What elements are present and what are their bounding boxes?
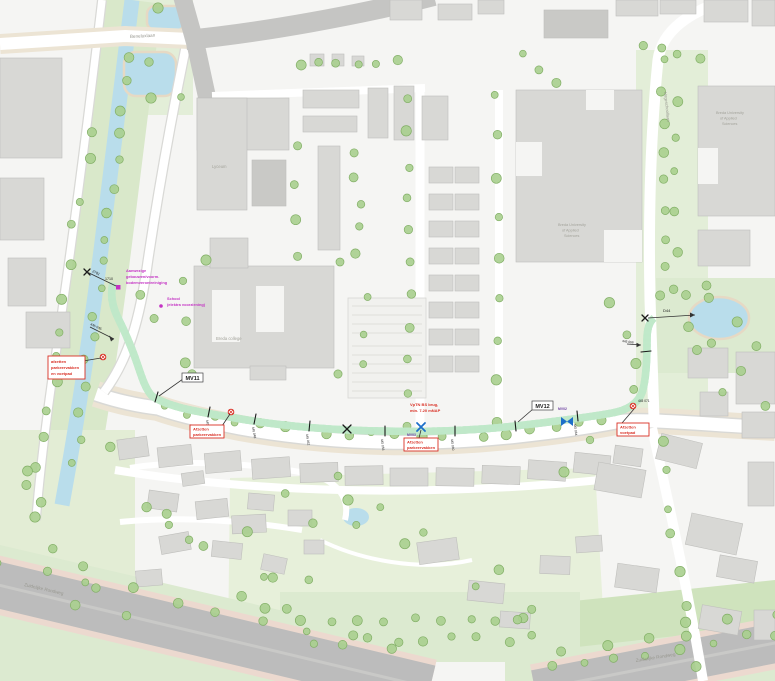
end-label-d44: D44 — [663, 308, 671, 313]
building — [26, 312, 70, 348]
building — [195, 498, 229, 519]
building — [438, 4, 472, 20]
building — [540, 555, 571, 574]
building — [135, 569, 162, 587]
building — [752, 0, 775, 26]
valve-label: MV12 — [535, 404, 549, 410]
building — [742, 412, 775, 438]
building — [429, 356, 453, 372]
building — [660, 0, 696, 14]
school-point[interactable] — [159, 304, 163, 308]
building — [303, 116, 357, 132]
building — [748, 462, 774, 506]
svg-text:Sciences: Sciences — [722, 122, 738, 126]
building — [455, 194, 479, 210]
svg-text:Breda University: Breda University — [558, 223, 586, 227]
building-label-lyceum: Lyceum — [212, 164, 227, 169]
svg-text:VpTN BS brug,: VpTN BS brug, — [410, 402, 438, 407]
building — [455, 329, 479, 345]
building — [455, 167, 479, 183]
building — [197, 98, 247, 210]
building — [613, 445, 643, 467]
building — [147, 490, 179, 512]
building — [544, 10, 608, 38]
building — [211, 540, 243, 559]
svg-text:Breda University: Breda University — [716, 111, 744, 115]
svg-text:School: School — [167, 296, 180, 301]
bridge-note: VpTN BS brug, min. 7.20 mNAP — [410, 402, 441, 413]
svg-text:(elektra voorziening): (elektra voorziening) — [167, 302, 206, 307]
building — [455, 248, 479, 264]
closure-text: en voetpad — [51, 371, 73, 376]
building — [482, 465, 521, 484]
building — [575, 535, 602, 553]
building — [736, 352, 775, 404]
building — [429, 329, 453, 345]
building — [478, 0, 504, 14]
closure-text: voetpad — [620, 430, 636, 435]
work-point-right — [630, 403, 636, 409]
building — [117, 436, 149, 460]
point-start: 1710 — [105, 277, 113, 281]
building — [429, 167, 453, 183]
building — [157, 444, 193, 467]
building — [251, 457, 290, 480]
building — [8, 258, 46, 306]
map-image: Beneluxlaan Hogeschoollaan Zuidelijke Ro… — [0, 0, 775, 681]
parking-lot — [348, 298, 426, 398]
closure-box-mid[interactable]: Afzetten parkeervakken — [404, 438, 438, 451]
building — [455, 221, 479, 237]
closure-text: Afzetten — [407, 440, 423, 445]
chainage-end: 445 071 — [638, 399, 650, 403]
valve-box-mv11[interactable]: MV11 — [182, 373, 203, 382]
svg-text:gebouwen/voorm.: gebouwen/voorm. — [126, 274, 159, 279]
building — [304, 540, 324, 554]
closure-text: parkeervakken — [51, 365, 80, 370]
building — [429, 275, 453, 291]
building — [368, 88, 388, 138]
valve-label: MV11 — [185, 376, 199, 382]
building — [0, 58, 62, 158]
building — [429, 248, 453, 264]
building — [0, 178, 44, 240]
building — [467, 580, 505, 604]
closure-box-left[interactable]: afzetten parkeervakken en voetpad — [48, 356, 85, 379]
svg-text:of Applied: of Applied — [720, 117, 737, 121]
closure-text: Afzetten — [620, 425, 636, 430]
building — [436, 468, 474, 487]
building — [390, 468, 428, 486]
building — [455, 275, 479, 291]
building — [455, 302, 479, 318]
valve-box-mv12[interactable]: MV12 — [532, 401, 553, 410]
closure-text: parkeervakken — [407, 445, 436, 450]
closure-text: Afzetten — [193, 427, 209, 432]
map-canvas[interactable]: Beneluxlaan Hogeschoollaan Zuidelijke Ro… — [0, 0, 775, 681]
building — [704, 0, 748, 22]
svg-text:min. 7.20 mNAP: min. 7.20 mNAP — [410, 408, 441, 413]
building — [616, 0, 658, 16]
work-point-left — [100, 354, 106, 360]
building-label-college: Breda college — [216, 336, 242, 341]
building — [210, 238, 248, 268]
valve-label-mv02: MV02 — [558, 407, 567, 411]
closure-text: afzetten — [51, 359, 67, 364]
building — [181, 471, 205, 487]
building — [318, 146, 340, 250]
building — [250, 366, 286, 380]
svg-text:of Applied: of Applied — [562, 229, 579, 233]
closure-text: parkeervakken — [193, 432, 222, 437]
building — [429, 302, 453, 318]
building — [247, 493, 274, 511]
building — [390, 0, 422, 20]
closure-box-mid-left[interactable]: Afzetten parkeervakken — [190, 425, 224, 438]
closure-box-right[interactable]: Afzetten voetpad — [617, 423, 649, 436]
svg-text:Sciences: Sciences — [564, 234, 580, 238]
building — [303, 90, 359, 108]
work-point-mid-left — [228, 409, 234, 415]
building — [422, 96, 448, 140]
route-start-point[interactable] — [116, 285, 121, 290]
building — [429, 221, 453, 237]
building — [204, 450, 242, 473]
building — [345, 466, 383, 486]
building — [455, 356, 479, 372]
building — [698, 230, 750, 266]
building — [252, 160, 286, 206]
building — [300, 462, 339, 482]
valve-label-mv03: MV03 — [407, 433, 416, 437]
svg-text:bodemverontreiniging: bodemverontreiniging — [126, 280, 168, 285]
building — [429, 194, 453, 210]
svg-text:Aanwezige: Aanwezige — [126, 268, 147, 273]
